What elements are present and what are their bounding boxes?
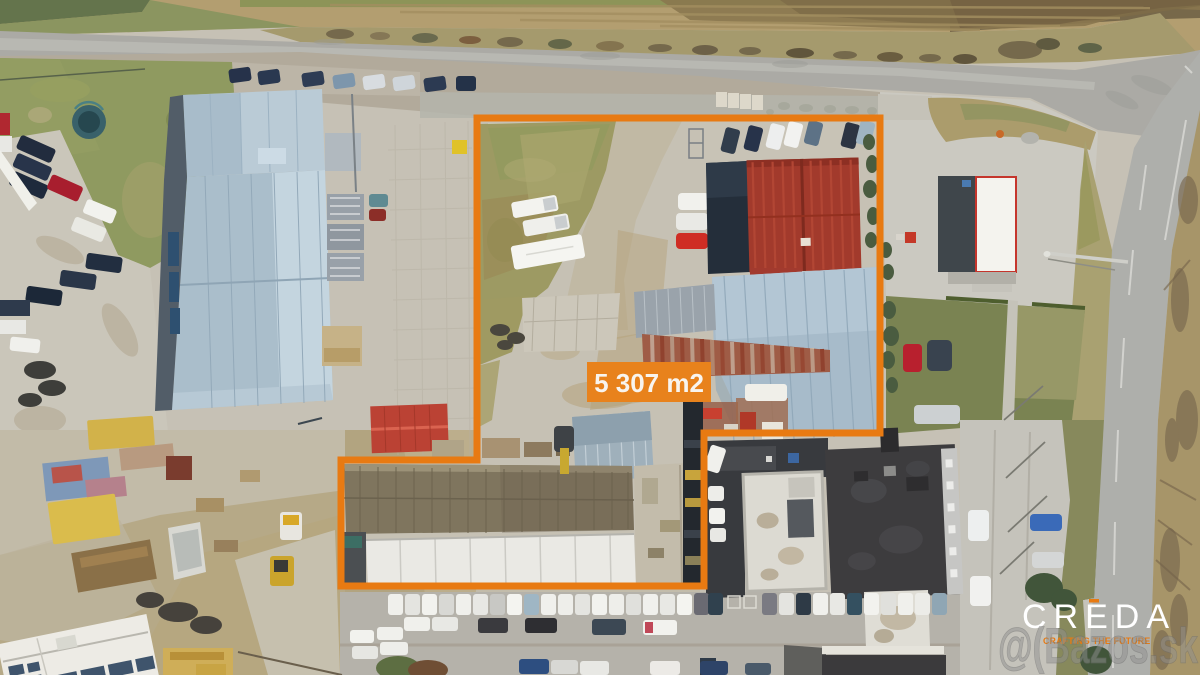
svg-text:@(Bazos.sk: @(Bazos.sk	[998, 618, 1198, 674]
svg-text:5 307 m2: 5 307 m2	[594, 368, 704, 398]
